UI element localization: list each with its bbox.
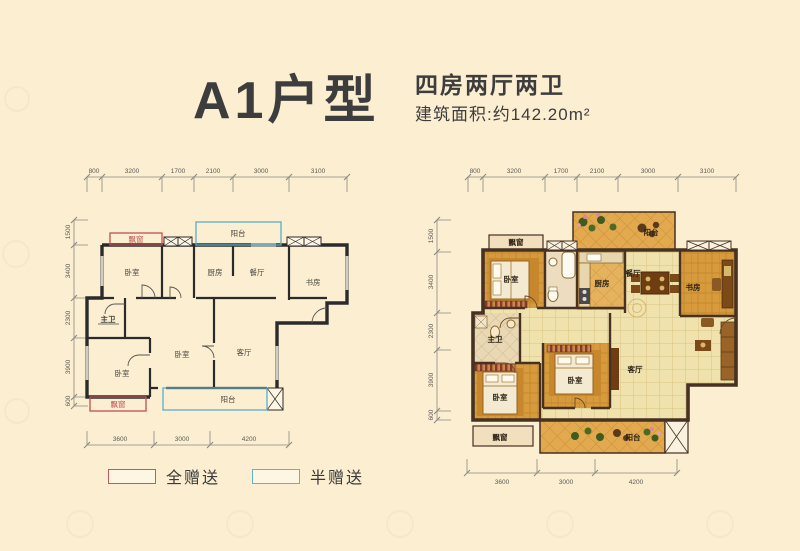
dim-label: 3400 <box>428 274 435 289</box>
watermark-icon <box>4 86 30 112</box>
room-label-bedroom: 卧室 <box>115 368 130 378</box>
room-label-bedroom: 卧室 <box>568 375 583 385</box>
room-label-bedroom: 卧室 <box>493 392 508 402</box>
left-floor-plan: 800 3200 1700 2100 3000 3100 1500 3400 2… <box>46 148 366 478</box>
room-label-kitchen: 厨房 <box>208 267 223 277</box>
dim-label: 800 <box>470 168 481 175</box>
room-label-kitchen: 厨房 <box>595 278 610 288</box>
dim-label: 3900 <box>428 372 435 387</box>
room-label-balcony: 阳台 <box>221 394 236 404</box>
room-label-bay-window: 飘窗 <box>493 432 508 442</box>
dim-label: 1500 <box>428 228 435 243</box>
right-floor-plan: 800 3200 1700 2100 3000 3100 1500 3400 2… <box>425 148 755 493</box>
dim-label: 2300 <box>428 323 435 338</box>
watermark-icon <box>226 510 254 538</box>
room-label-study: 书房 <box>686 282 701 292</box>
room-label-bay-window: 飘窗 <box>509 237 524 247</box>
watermark-icon <box>4 398 30 424</box>
dim-label: 3000 <box>175 436 190 443</box>
dim-label: 4200 <box>242 436 257 443</box>
full-gift-label: 全赠送 <box>166 464 220 488</box>
watermark-icon <box>66 510 94 538</box>
watermark-icon <box>706 510 734 538</box>
dim-label: 2100 <box>206 168 221 175</box>
gift-annotation-boxes <box>90 222 281 411</box>
page-title: A1户型 <box>193 58 379 133</box>
dimension-chain-bottom <box>464 459 680 476</box>
room-label-master-bath: 主卫 <box>488 334 503 344</box>
room-label-study: 书房 <box>306 277 321 287</box>
dim-label: 3600 <box>495 479 510 486</box>
building-area-label: 建筑面积:约142.20m² <box>415 100 591 125</box>
room-label-balcony: 阳台 <box>626 432 641 442</box>
dim-label: 4200 <box>629 479 644 486</box>
room-label-bay-window: 飘窗 <box>129 234 144 244</box>
dim-label: 3200 <box>507 168 522 175</box>
dim-label: 600 <box>65 395 72 406</box>
room-label-bedroom: 卧室 <box>175 349 190 359</box>
room-label-balcony: 阳台 <box>644 227 659 237</box>
dimension-chain-left <box>434 217 451 423</box>
dimension-chain-top <box>465 174 739 192</box>
dim-label: 3100 <box>700 168 715 175</box>
dim-label: 3400 <box>65 263 72 278</box>
room-label-bedroom: 卧室 <box>504 274 519 284</box>
half-gift-swatch <box>252 469 300 484</box>
layout-type-label: 四房两厅两卫 <box>415 66 565 100</box>
full-gift-swatch <box>108 469 156 484</box>
schematic-walls <box>87 237 347 410</box>
room-label-dining: 餐厅 <box>250 268 265 277</box>
watermark-icon <box>386 510 414 538</box>
room-label-living: 客厅 <box>627 364 643 374</box>
dim-label: 2100 <box>590 168 605 175</box>
dim-label: 3000 <box>559 479 574 486</box>
dim-label: 1700 <box>554 168 569 175</box>
room-label-dining: 餐厅 <box>625 268 641 278</box>
room-label-living: 客厅 <box>237 347 252 357</box>
dim-label: 3900 <box>65 359 72 374</box>
dim-label: 3600 <box>113 436 128 443</box>
dim-label: 1700 <box>171 168 186 175</box>
dim-label: 3000 <box>641 168 656 175</box>
dim-label: 3000 <box>254 168 269 175</box>
dimension-chain-top <box>84 174 350 192</box>
dim-label: 2300 <box>65 310 72 325</box>
dim-label: 3200 <box>125 168 140 175</box>
legend: 全赠送 半赠送 <box>108 464 364 488</box>
room-label-bedroom: 卧室 <box>125 267 140 277</box>
dim-label: 3100 <box>311 168 326 175</box>
half-gift-label: 半赠送 <box>310 464 364 488</box>
watermark-icon <box>2 240 30 268</box>
watermark-icon <box>546 510 574 538</box>
dim-label: 800 <box>89 168 100 175</box>
room-label-bay-window: 飘窗 <box>111 399 126 409</box>
dim-label: 1500 <box>65 224 72 239</box>
dim-label: 600 <box>428 409 435 420</box>
room-label-balcony: 阳台 <box>231 228 246 238</box>
room-label-master-bath: 主卫 <box>101 314 116 324</box>
